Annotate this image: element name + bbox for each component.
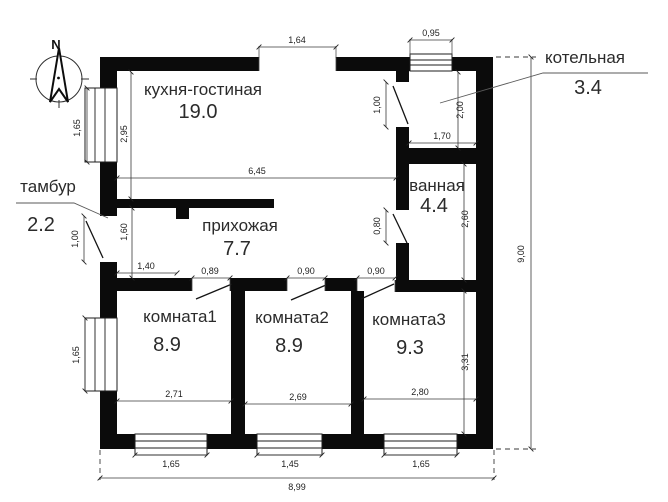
dim-tambour-door: 1,00	[70, 230, 80, 248]
dim-tambour-width: 1,40	[137, 261, 155, 271]
dim-top-window: 0,95	[422, 28, 440, 38]
dim-room1-width: 2,71	[165, 389, 183, 399]
dim-room3-depth: 3,31	[460, 353, 470, 371]
room-label-room3: комната3	[372, 310, 446, 329]
dim-bath-depth: 2,60	[460, 210, 470, 228]
room-area-bathroom: 4.4	[420, 195, 448, 217]
floor-plan-drawing: N 1,64 0,95 1,65 2,95 6,45 1,00 2,00 1,7…	[0, 0, 668, 502]
room-area-kitchen: 19.0	[179, 101, 218, 123]
dimension-lines: 1,64 0,95 1,65 2,95 6,45 1,00 2,00 1,70 …	[70, 28, 536, 492]
room-area-hallway: 7.7	[223, 238, 251, 260]
exterior-walls	[100, 57, 493, 449]
room-area-room2: 8.9	[275, 335, 303, 357]
north-compass-icon: N	[30, 37, 89, 108]
room-label-room1: комната1	[143, 307, 217, 326]
dim-room2-door: 0,90	[297, 266, 315, 276]
floor-plan: N 1,64 0,95 1,65 2,95 6,45 1,00 2,00 1,7…	[0, 0, 668, 502]
room-label-bathroom: ванная	[409, 176, 465, 195]
dim-top-opening: 1,64	[288, 35, 306, 45]
dim-room3-door: 0,90	[367, 266, 385, 276]
dim-boiler-width: 1,70	[433, 131, 451, 141]
dim-window2: 1,45	[281, 459, 299, 469]
dim-window3: 1,65	[412, 459, 430, 469]
dim-total-height: 9,00	[516, 245, 526, 263]
dim-tambour-depth: 1,60	[119, 223, 129, 241]
dim-window1: 1,65	[162, 459, 180, 469]
dim-bath-door: 0,80	[372, 217, 382, 235]
room-area-boiler: 3.4	[574, 77, 602, 99]
room-area-tambour: 2.2	[27, 214, 55, 236]
room-label-room2: комната2	[255, 308, 329, 327]
doors	[86, 86, 408, 300]
dim-left-window-bottom: 1,65	[71, 346, 81, 364]
dim-total-width: 8,99	[288, 482, 306, 492]
room-label-boiler: котельная	[545, 48, 625, 67]
compass-north-label: N	[51, 37, 60, 52]
dim-room2-width: 2,69	[289, 392, 307, 402]
dim-room1-door: 0,89	[201, 266, 219, 276]
dim-boiler-door: 1,00	[372, 96, 382, 114]
room-area-room1: 8.9	[153, 334, 181, 356]
room-label-tambour: тамбур	[20, 177, 76, 196]
dim-kitchen-width: 6,45	[248, 166, 266, 176]
dim-room3-width: 2,80	[411, 387, 429, 397]
room-label-kitchen: кухня-гостиная	[144, 80, 262, 99]
dim-boiler-depth: 2,00	[455, 101, 465, 119]
room-label-hallway: прихожая	[202, 216, 278, 235]
dim-kitchen-depth: 2,95	[119, 125, 129, 143]
interior-walls	[100, 71, 476, 434]
dim-left-window-top: 1,65	[72, 119, 82, 137]
room-area-room3: 9.3	[396, 337, 424, 359]
